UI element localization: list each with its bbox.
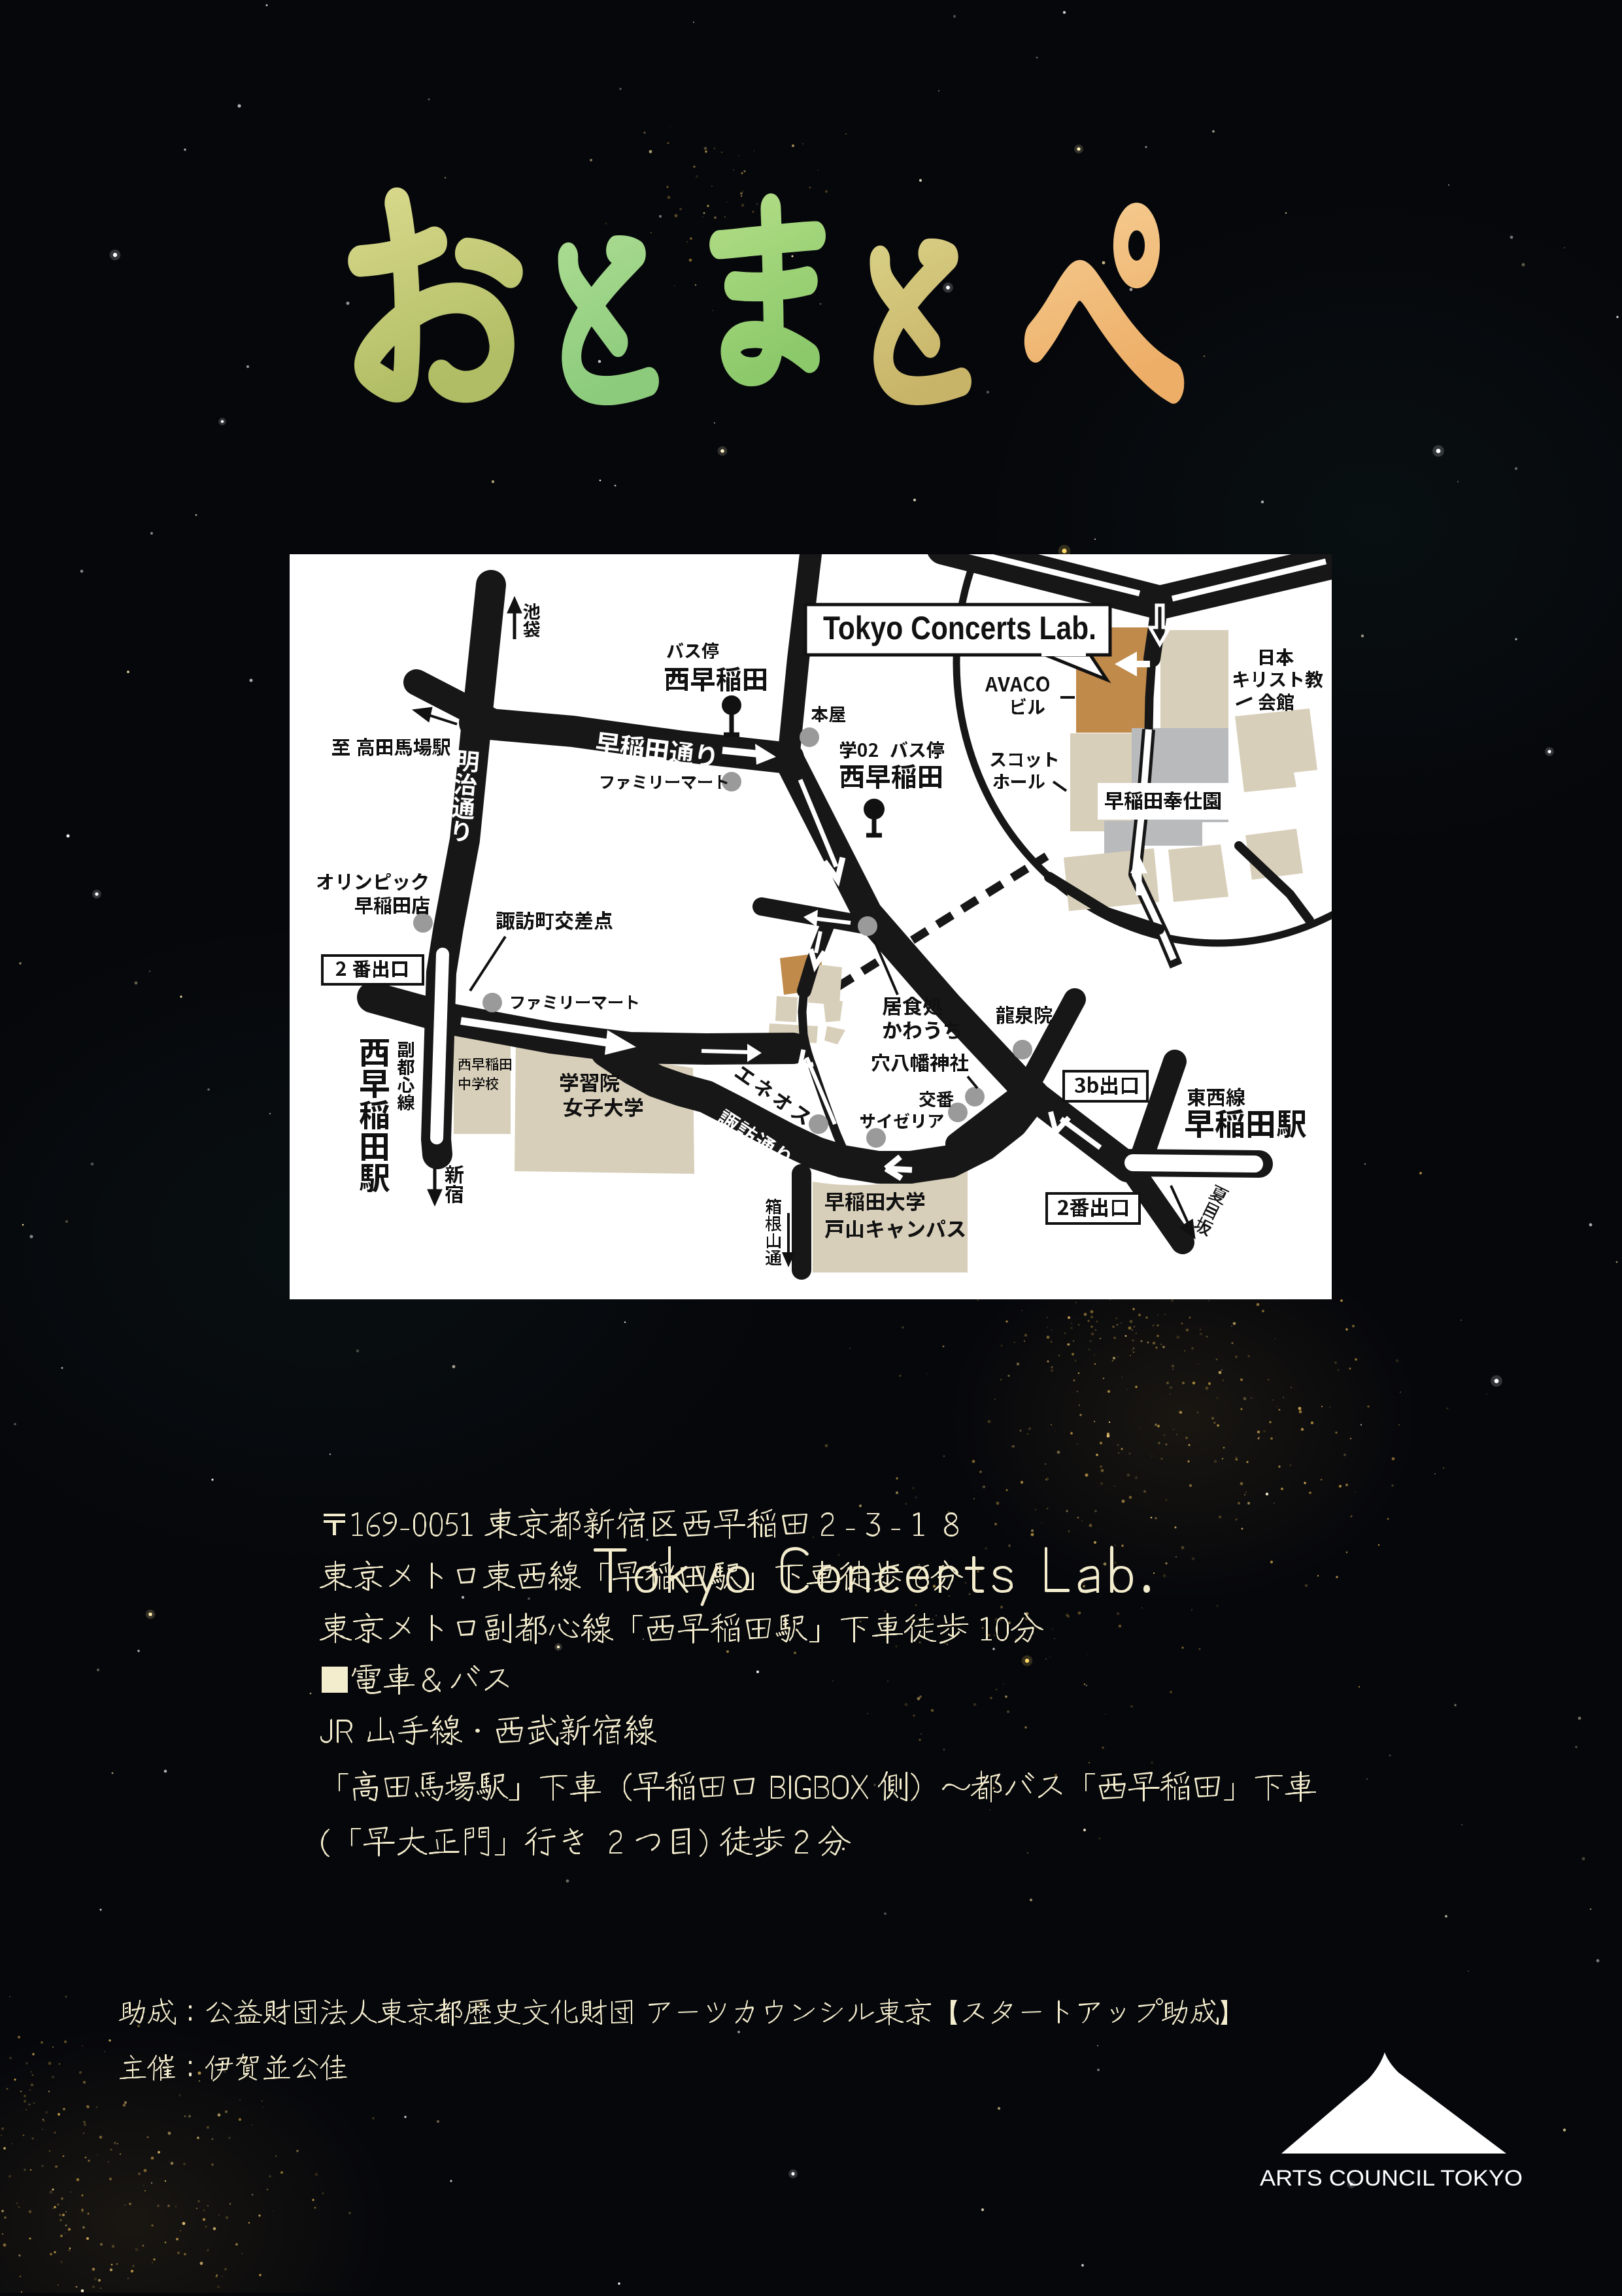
svg-text:ARTS COUNCIL TOKYO: ARTS COUNCIL TOKYO (1260, 2166, 1523, 2191)
svg-text:Tokyo Concerts Lab.: Tokyo Concerts Lab. (823, 610, 1096, 646)
